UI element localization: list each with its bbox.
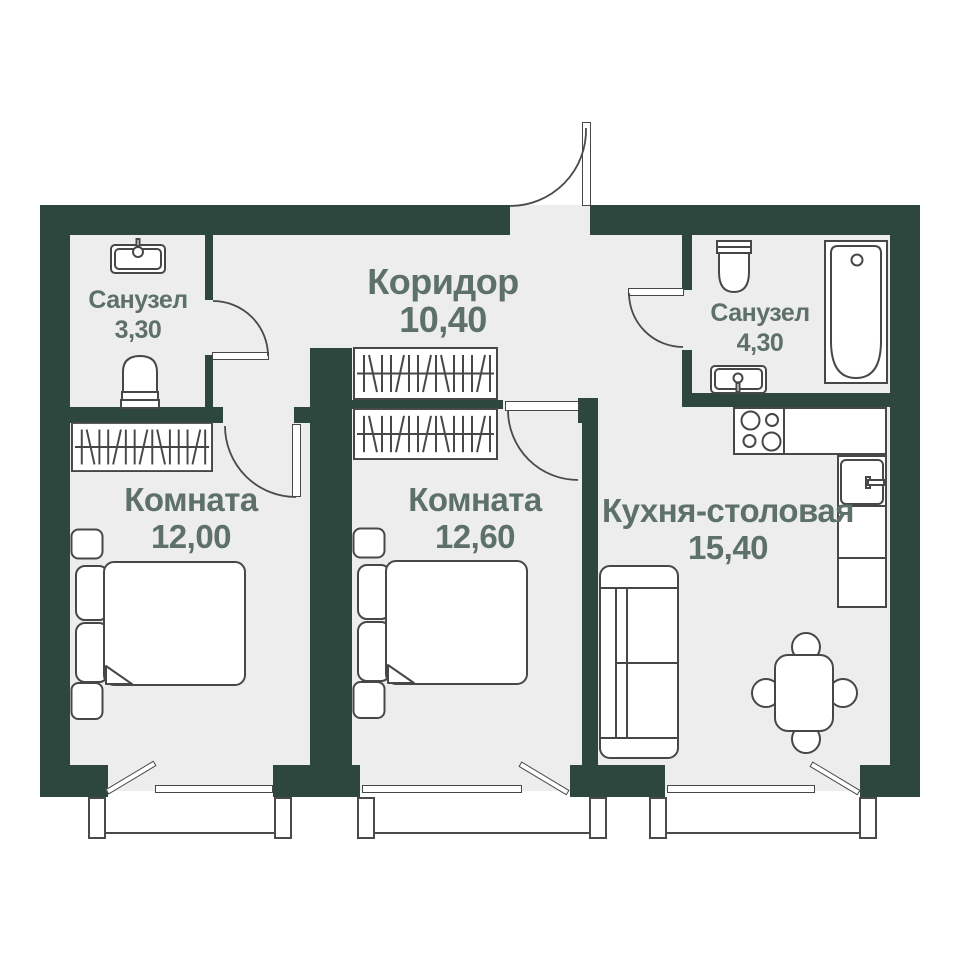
room-label-bathroom-2: Санузел 4,30 bbox=[710, 298, 809, 358]
floor-plan: Санузел 3,30 Коридор 10,40 Санузел 4,30 … bbox=[0, 0, 960, 960]
room-area: 10,40 bbox=[367, 301, 518, 339]
room-name: Коридор bbox=[367, 263, 518, 301]
room-area: 3,30 bbox=[88, 315, 187, 345]
room-area: 12,60 bbox=[408, 518, 542, 555]
room-name: Комната bbox=[408, 481, 542, 518]
room-label-corridor: Коридор 10,40 bbox=[367, 263, 518, 339]
room-label-room-1: Комната 12,00 bbox=[124, 481, 258, 555]
door-arcs bbox=[0, 0, 960, 960]
room-name: Комната bbox=[124, 481, 258, 518]
room-name: Санузел bbox=[88, 285, 187, 315]
room-area: 15,40 bbox=[602, 529, 854, 566]
room2-door-arc bbox=[508, 410, 578, 480]
room-name: Санузел bbox=[710, 298, 809, 328]
room-label-room-2: Комната 12,60 bbox=[408, 481, 542, 555]
room-name: Кухня-столовая bbox=[602, 492, 854, 529]
room-area: 12,00 bbox=[124, 518, 258, 555]
room-label-kitchen-dining: Кухня-столовая 15,40 bbox=[602, 492, 854, 566]
room-label-bathroom-1: Санузел 3,30 bbox=[88, 285, 187, 345]
room-area: 4,30 bbox=[710, 328, 809, 358]
entrance-door-arc bbox=[510, 128, 586, 206]
bathroom1-door-arc bbox=[213, 301, 268, 356]
bathroom2-door-arc bbox=[629, 293, 683, 347]
